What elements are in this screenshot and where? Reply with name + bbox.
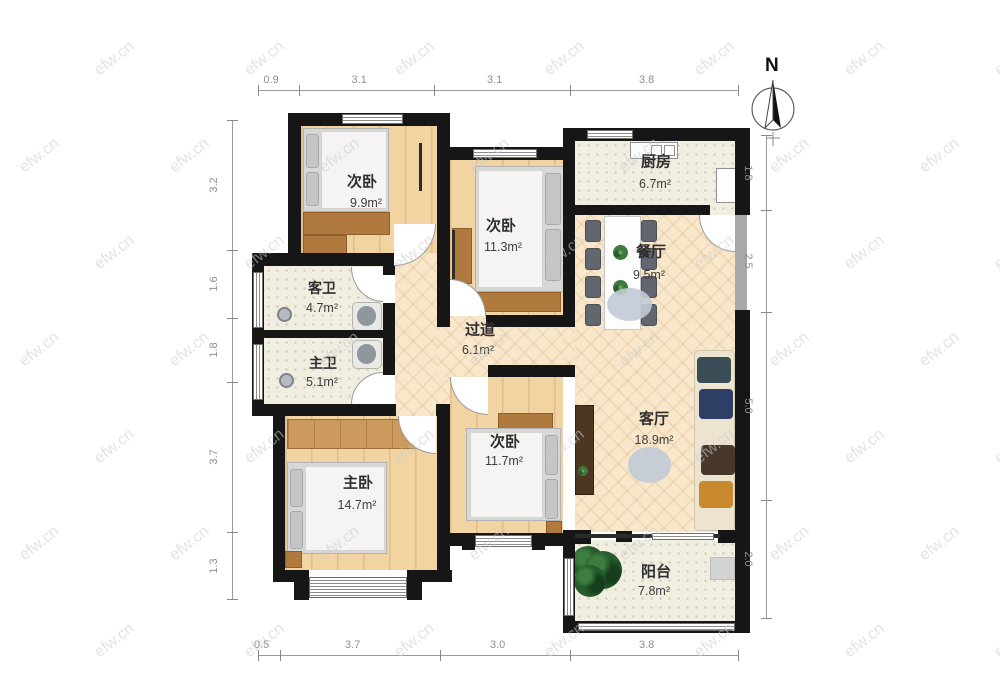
dimension-label: 3.2 — [208, 170, 220, 200]
watermark: efw.cn — [91, 217, 158, 276]
window — [578, 623, 735, 631]
watermark: efw.cn — [391, 23, 458, 82]
pillow — [290, 469, 303, 507]
dining-chair — [585, 304, 601, 326]
watermark: efw.cn — [91, 23, 158, 82]
dimension-label: 3.7 — [345, 639, 375, 651]
closet-line — [419, 143, 422, 191]
dimension-label: 2.5 — [742, 246, 754, 276]
dimension-tick — [738, 650, 739, 661]
dimension-line-bottom — [258, 655, 738, 656]
watermark: efw.cn — [166, 120, 233, 179]
watermark: efw.cn — [166, 508, 233, 567]
room-area-bedroom-c: 11.7m² — [485, 454, 523, 468]
dimension-tick — [761, 500, 772, 501]
room-label-guest-bath: 客卫 — [308, 278, 336, 298]
nightstand — [285, 551, 302, 568]
dimension-line-top — [258, 90, 738, 91]
dimension-label: 1.6 — [208, 269, 220, 299]
window — [253, 272, 263, 328]
room-label-living: 客厅 — [639, 408, 669, 429]
window — [652, 533, 714, 540]
dimension-tick — [227, 120, 238, 121]
dimension-tick — [227, 532, 238, 533]
wall — [252, 253, 395, 266]
sofa-pillow — [699, 389, 733, 419]
dimension-tick — [258, 650, 259, 661]
wall — [486, 315, 575, 327]
wall — [437, 404, 450, 582]
wall — [437, 113, 450, 327]
sofa-pillow — [699, 481, 733, 508]
pillow — [306, 134, 319, 168]
room-label-balcony: 阳台 — [641, 561, 671, 582]
wall — [563, 205, 710, 215]
dimension-label: 3.7 — [208, 442, 220, 472]
wall — [252, 404, 396, 416]
watermark: efw.cn — [841, 411, 908, 470]
room-label-bedroom-b: 次卧 — [486, 215, 516, 236]
dimension-label: 1.8 — [208, 335, 220, 365]
watermark: efw.cn — [241, 23, 308, 82]
dresser — [303, 212, 390, 235]
dimension-label: 2.0 — [742, 544, 754, 574]
wall — [264, 330, 383, 338]
watermark: efw.cn — [991, 605, 1000, 664]
dimension-tick — [280, 650, 281, 661]
dimension-tick — [227, 599, 238, 600]
room-area-dining: 9.5m² — [633, 268, 665, 282]
dimension-label: 0.9 — [264, 74, 294, 86]
window — [475, 535, 532, 547]
window — [342, 114, 403, 124]
dimension-label: 3.1 — [487, 74, 517, 86]
room-area-balcony: 7.8m² — [638, 584, 670, 598]
room-label-dining: 餐厅 — [636, 241, 666, 262]
watermark: efw.cn — [841, 23, 908, 82]
watermark: efw.cn — [91, 411, 158, 470]
floorplan-canvas: 次卧 9.9m² 次卧 11.3m² 厨房 6.7m² 餐厅 9.5m² 客卫 … — [0, 0, 1000, 675]
balcony-plant — [574, 565, 606, 597]
wall — [407, 570, 422, 600]
deco-plant — [578, 466, 588, 476]
compass-north-label: N — [765, 55, 779, 77]
pillow — [290, 511, 303, 549]
dimension-label: 3.0 — [490, 639, 520, 651]
dimension-tick — [434, 85, 435, 96]
room-label-bedroom-c: 次卧 — [490, 431, 520, 452]
wall — [718, 530, 735, 543]
room-area-living: 18.9m² — [635, 433, 674, 447]
dimension-tick — [738, 85, 739, 96]
sofa-pillow — [701, 445, 735, 475]
dimension-tick — [761, 210, 772, 211]
dimension-tick — [227, 382, 238, 383]
dimension-label: 3.8 — [639, 74, 669, 86]
wall — [437, 315, 450, 327]
watermark: efw.cn — [16, 314, 83, 373]
dresser — [475, 292, 561, 312]
dimension-tick — [440, 650, 441, 661]
dimension-tick — [258, 85, 259, 96]
pillow — [545, 229, 561, 281]
table-plant — [613, 245, 628, 260]
rug — [628, 447, 671, 483]
dimension-label: 1.3 — [208, 551, 220, 581]
dimension-label: 0.5 — [254, 639, 284, 651]
fridge — [716, 168, 736, 203]
dimension-line-right — [766, 135, 767, 618]
watermark: efw.cn — [916, 508, 983, 567]
dining-chair — [641, 220, 657, 242]
dimension-label: 3.1 — [352, 74, 382, 86]
room-area-master-bedroom: 14.7m² — [338, 498, 377, 512]
dimension-label: 5.0 — [742, 391, 754, 421]
rug — [607, 288, 652, 321]
dimension-tick — [299, 85, 300, 96]
window — [309, 577, 407, 598]
watermark: efw.cn — [766, 508, 833, 567]
watermark: efw.cn — [841, 217, 908, 276]
window — [564, 558, 574, 616]
window — [587, 130, 633, 139]
watermark: efw.cn — [91, 605, 158, 664]
watermark: efw.cn — [991, 217, 1000, 276]
wall — [294, 570, 309, 600]
room-label-kitchen: 厨房 — [641, 151, 671, 172]
watermark: efw.cn — [691, 23, 758, 82]
pillow — [545, 173, 561, 225]
sideboard — [452, 228, 472, 284]
dimension-tick — [570, 650, 571, 661]
dimension-tick — [227, 250, 238, 251]
room-area-guest-bath: 4.7m² — [306, 301, 338, 315]
watermark: efw.cn — [841, 605, 908, 664]
watermark: efw.cn — [16, 508, 83, 567]
room-label-master-bath: 主卫 — [309, 353, 337, 373]
watermark: efw.cn — [541, 23, 608, 82]
toilet — [352, 340, 382, 369]
wall — [273, 416, 285, 570]
room-label-bedroom-a: 次卧 — [347, 171, 377, 192]
room-area-bedroom-a: 9.9m² — [350, 196, 382, 210]
wall — [532, 533, 545, 550]
dimension-label: 1.8 — [742, 158, 754, 188]
wall — [288, 126, 301, 255]
watermark: efw.cn — [991, 411, 1000, 470]
watermark: efw.cn — [991, 23, 1000, 82]
watermark: efw.cn — [916, 120, 983, 179]
watermark: efw.cn — [766, 314, 833, 373]
pillow — [545, 479, 558, 519]
compass-icon — [747, 76, 803, 148]
room-area-kitchen: 6.7m² — [639, 177, 671, 191]
room-area-master-bath: 5.1m² — [306, 375, 338, 389]
watermark: efw.cn — [16, 120, 83, 179]
dimension-line-left — [232, 120, 233, 599]
window — [473, 149, 537, 158]
wall — [488, 365, 575, 377]
dimension-label: 3.8 — [639, 639, 669, 651]
dimension-tick — [761, 618, 772, 619]
wall — [735, 310, 750, 633]
dining-chair — [585, 276, 601, 298]
watermark: efw.cn — [166, 314, 233, 373]
sofa-pillow — [697, 357, 731, 383]
balcony-mat — [710, 557, 735, 580]
wall — [383, 303, 395, 375]
closet-line — [452, 230, 455, 285]
wall — [563, 141, 575, 327]
dimension-tick — [227, 318, 238, 319]
pillow — [545, 435, 558, 475]
dimension-tick — [761, 312, 772, 313]
wall — [462, 533, 475, 550]
dimension-tick — [570, 85, 571, 96]
pillow — [306, 172, 319, 206]
tv-console — [575, 405, 594, 495]
window — [253, 344, 263, 400]
toilet — [352, 302, 382, 331]
room-area-bedroom-b: 11.3m² — [484, 240, 522, 254]
bath-sink — [279, 373, 294, 388]
dining-chair — [585, 248, 601, 270]
watermark: efw.cn — [916, 314, 983, 373]
room-area-hallway: 6.1m² — [462, 343, 494, 357]
room-label-hallway: 过道 — [465, 319, 495, 340]
room-label-master-bedroom: 主卧 — [343, 472, 373, 493]
bath-sink — [277, 307, 292, 322]
dining-chair — [585, 220, 601, 242]
